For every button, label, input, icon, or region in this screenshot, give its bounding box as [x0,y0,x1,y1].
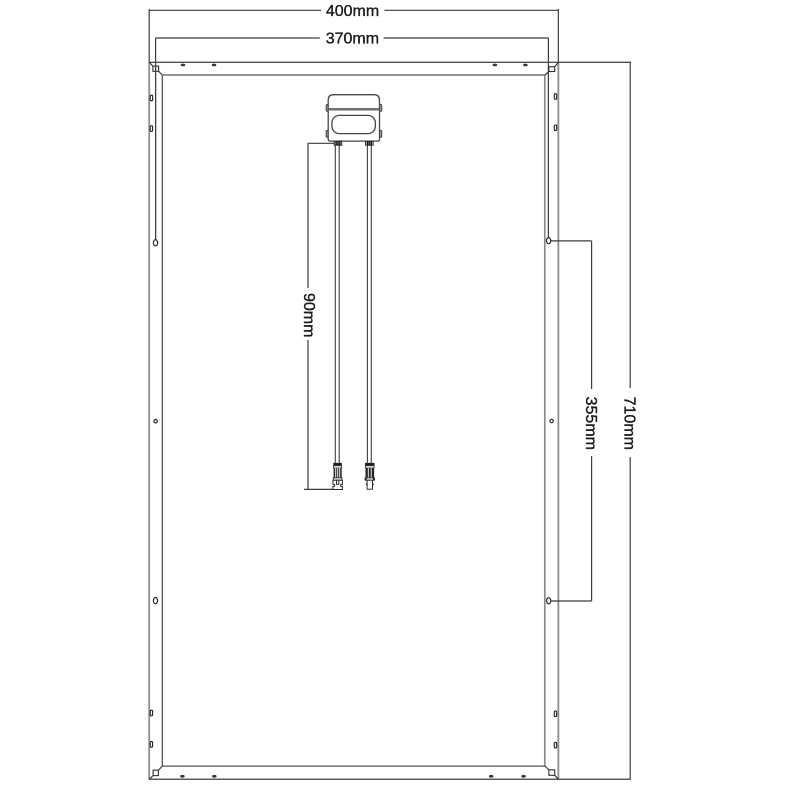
svg-text:355mm: 355mm [582,397,599,450]
svg-text:400mm: 400mm [326,3,379,20]
svg-text:370mm: 370mm [326,30,379,47]
svg-text:90mm: 90mm [300,293,317,337]
svg-text:710mm: 710mm [621,397,638,450]
